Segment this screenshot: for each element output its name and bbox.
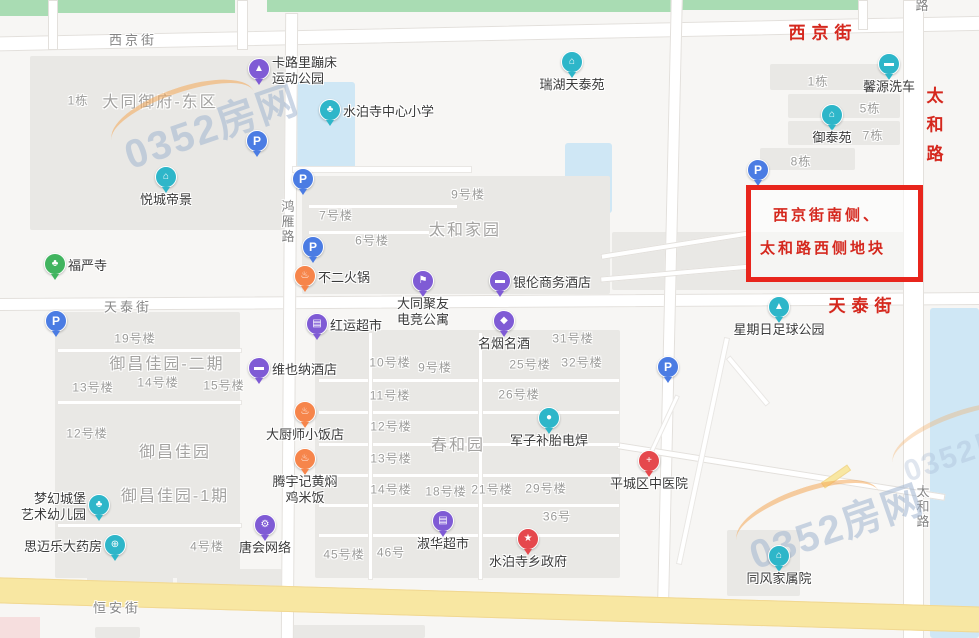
poi-label[interactable]: 名烟名酒 (478, 336, 530, 352)
plot-annotation-line-2: 太和路西侧地块 (760, 237, 886, 258)
area-label: 太和家园 (429, 216, 501, 240)
residence-icon[interactable]: ⌂ (155, 166, 177, 188)
poi-label[interactable]: 唐会网络 (239, 540, 291, 556)
building-label: 31号楼 (552, 330, 593, 347)
major-road-segment (0, 577, 979, 633)
green-area (682, 0, 858, 10)
building-label: 14号楼 (137, 374, 178, 391)
building-label: 25号楼 (509, 356, 550, 373)
path-area (318, 410, 620, 415)
building-label: 46号 (377, 544, 405, 561)
restaurant-icon[interactable]: ♨ (294, 448, 316, 470)
building-label: 6号楼 (355, 232, 389, 249)
poi-label[interactable]: 同风家属院 (746, 571, 811, 587)
area-label: 大同御府-东区 (102, 88, 217, 112)
residence-icon[interactable]: ⌂ (768, 545, 790, 567)
poi-label[interactable]: 水泊寺中心小学 (343, 104, 434, 120)
block-area (788, 94, 900, 118)
street-label: 恒安街 (93, 598, 141, 617)
building-label: 21号楼 (471, 481, 512, 498)
building-label: 1栋 (68, 92, 89, 109)
pharmacy-icon[interactable]: ⊕ (104, 534, 126, 556)
trampoline-park-icon[interactable]: ▲ (248, 58, 270, 80)
government-icon[interactable]: ★ (517, 528, 539, 550)
poi-label[interactable]: 御泰苑 (812, 130, 851, 146)
area-label: 御昌佳园-二期 (109, 350, 224, 374)
parking-icon[interactable]: P (45, 310, 67, 332)
building-label: 12号楼 (66, 425, 107, 442)
school-icon[interactable]: ♣ (319, 99, 341, 121)
street-label: 路 (912, 0, 931, 14)
poi-label[interactable]: 银伦商务酒店 (513, 275, 591, 291)
path-area (292, 166, 472, 173)
restaurant-icon[interactable]: ♨ (294, 401, 316, 423)
poi-label[interactable]: 星期日足球公园 (733, 322, 824, 338)
poi-label[interactable]: 馨源洗车 (863, 79, 915, 95)
poi-label[interactable]: 红运超市 (330, 318, 382, 334)
poi-label[interactable]: 福严寺 (68, 258, 107, 274)
road-segment (858, 0, 868, 30)
building-label: 8栋 (791, 153, 812, 170)
building-label: 7号楼 (319, 207, 353, 224)
plot-annotation-box: 西京街南侧、 太和路西侧地块 (746, 185, 923, 282)
building-label: 11号楼 (370, 387, 410, 404)
building-label: 14号楼 (370, 481, 411, 498)
hospital-icon[interactable]: + (638, 450, 660, 472)
block-area (290, 625, 425, 638)
building-label: 29号楼 (525, 480, 566, 497)
building-label: 19号楼 (114, 330, 155, 347)
street-label: 鸿雁路 (278, 200, 297, 245)
parking-icon[interactable]: P (246, 130, 268, 152)
water-area (930, 308, 979, 638)
building-label: 32号楼 (561, 354, 602, 371)
poi-label[interactable]: 平城区中医院 (610, 476, 688, 492)
building-label: 13号楼 (370, 450, 411, 467)
restaurant-icon[interactable]: ♨ (294, 265, 316, 287)
poi-label[interactable]: 腾宇记黄焖鸡米饭 (272, 474, 337, 506)
hotel-icon[interactable]: ▬ (489, 270, 511, 292)
street-label: 太和路 (913, 485, 932, 530)
building-label: 5栋 (860, 100, 881, 117)
poi-label[interactable]: 大厨师小饭店 (266, 427, 344, 443)
building-label: 4号楼 (190, 538, 224, 555)
path-area (676, 337, 730, 565)
building-label: 10号楼 (369, 354, 410, 371)
poi-label[interactable]: 悦城帝景 (140, 192, 192, 208)
building-label: 18号楼 (425, 483, 466, 500)
car-wash-icon[interactable]: ▬ (878, 53, 900, 75)
building-label: 9号楼 (418, 359, 452, 376)
apartment-flag-icon[interactable]: ⚑ (412, 270, 434, 292)
residence-icon[interactable]: ⌂ (821, 104, 843, 126)
supermarket-icon[interactable]: ▤ (306, 313, 328, 335)
building-label: 7栋 (863, 127, 884, 144)
kindergarten-icon[interactable]: ♣ (88, 494, 110, 516)
hotel-icon[interactable]: ▬ (248, 357, 270, 379)
path-area (318, 473, 620, 478)
street-label-red: 西京街 (789, 19, 858, 44)
path-area (318, 503, 620, 508)
path-area (57, 523, 242, 528)
poi-label[interactable]: 维也纳酒店 (272, 362, 337, 378)
green-area (58, 0, 235, 13)
poi-label[interactable]: 卡路里蹦床运动公园 (272, 55, 337, 87)
supermarket-icon[interactable]: ▤ (432, 510, 454, 532)
green-area (267, 0, 672, 12)
poi-label[interactable]: 梦幻城堡艺术幼儿园 (21, 491, 86, 523)
building-label: 9号楼 (451, 186, 485, 203)
poi-label[interactable]: 大同聚友电竞公寓 (397, 296, 449, 328)
water-area (293, 82, 355, 170)
path-area (726, 355, 770, 406)
poi-label[interactable]: 淑华超市 (417, 536, 469, 552)
path-area (478, 332, 483, 580)
green-area (0, 0, 50, 16)
residence-icon[interactable]: ⌂ (561, 51, 583, 73)
poi-label[interactable]: 不二火锅 (318, 270, 370, 286)
sports-park-icon[interactable]: ▲ (768, 296, 790, 318)
building-label: 15号楼 (203, 377, 244, 394)
path-area (318, 378, 620, 383)
parking-icon[interactable]: P (657, 356, 679, 378)
poi-label[interactable]: 思迈乐大药房 (24, 539, 102, 555)
tire-repair-icon[interactable]: ● (538, 407, 560, 429)
street-label-red: 太和路 (921, 87, 946, 174)
building-label: 13号楼 (72, 379, 113, 396)
building-label: 36号 (543, 508, 571, 525)
poi-label[interactable]: 瑞湖天泰苑 (539, 77, 604, 93)
pink-area (0, 617, 40, 638)
street-label-red: 天泰街 (829, 292, 898, 317)
area-label: 春和园 (431, 431, 485, 455)
area-label: 御昌佳园-1期 (121, 482, 229, 506)
road-segment (48, 0, 58, 50)
street-label: 天泰街 (104, 297, 152, 316)
street-label: 西京街 (109, 30, 157, 49)
building-label: 12号楼 (370, 418, 411, 435)
building-label: 45号楼 (323, 546, 364, 563)
parking-icon[interactable]: P (292, 168, 314, 190)
parking-icon[interactable]: P (747, 159, 769, 181)
parking-icon[interactable]: P (302, 236, 324, 258)
building-label: 1栋 (808, 73, 829, 90)
building-label: 26号楼 (498, 386, 539, 403)
map-canvas[interactable]: 西京街路鸿雁路天泰街恒安街太和路西京街太和路天泰街大同御府-东区太和家园御昌佳园… (0, 0, 979, 638)
temple-icon[interactable]: ♣ (44, 253, 66, 275)
path-area (57, 400, 242, 405)
poi-label[interactable]: 水泊寺乡政府 (489, 554, 567, 570)
plot-annotation-line-1: 西京街南侧、 (773, 204, 881, 225)
poi-label[interactable]: 军子补胎电焊 (510, 433, 588, 449)
block-area (95, 627, 140, 638)
shop-bag-icon[interactable]: ◆ (493, 310, 515, 332)
area-label: 御昌佳园 (139, 438, 211, 462)
road-segment (237, 0, 248, 50)
internet-cafe-icon[interactable]: ⚙ (254, 514, 276, 536)
